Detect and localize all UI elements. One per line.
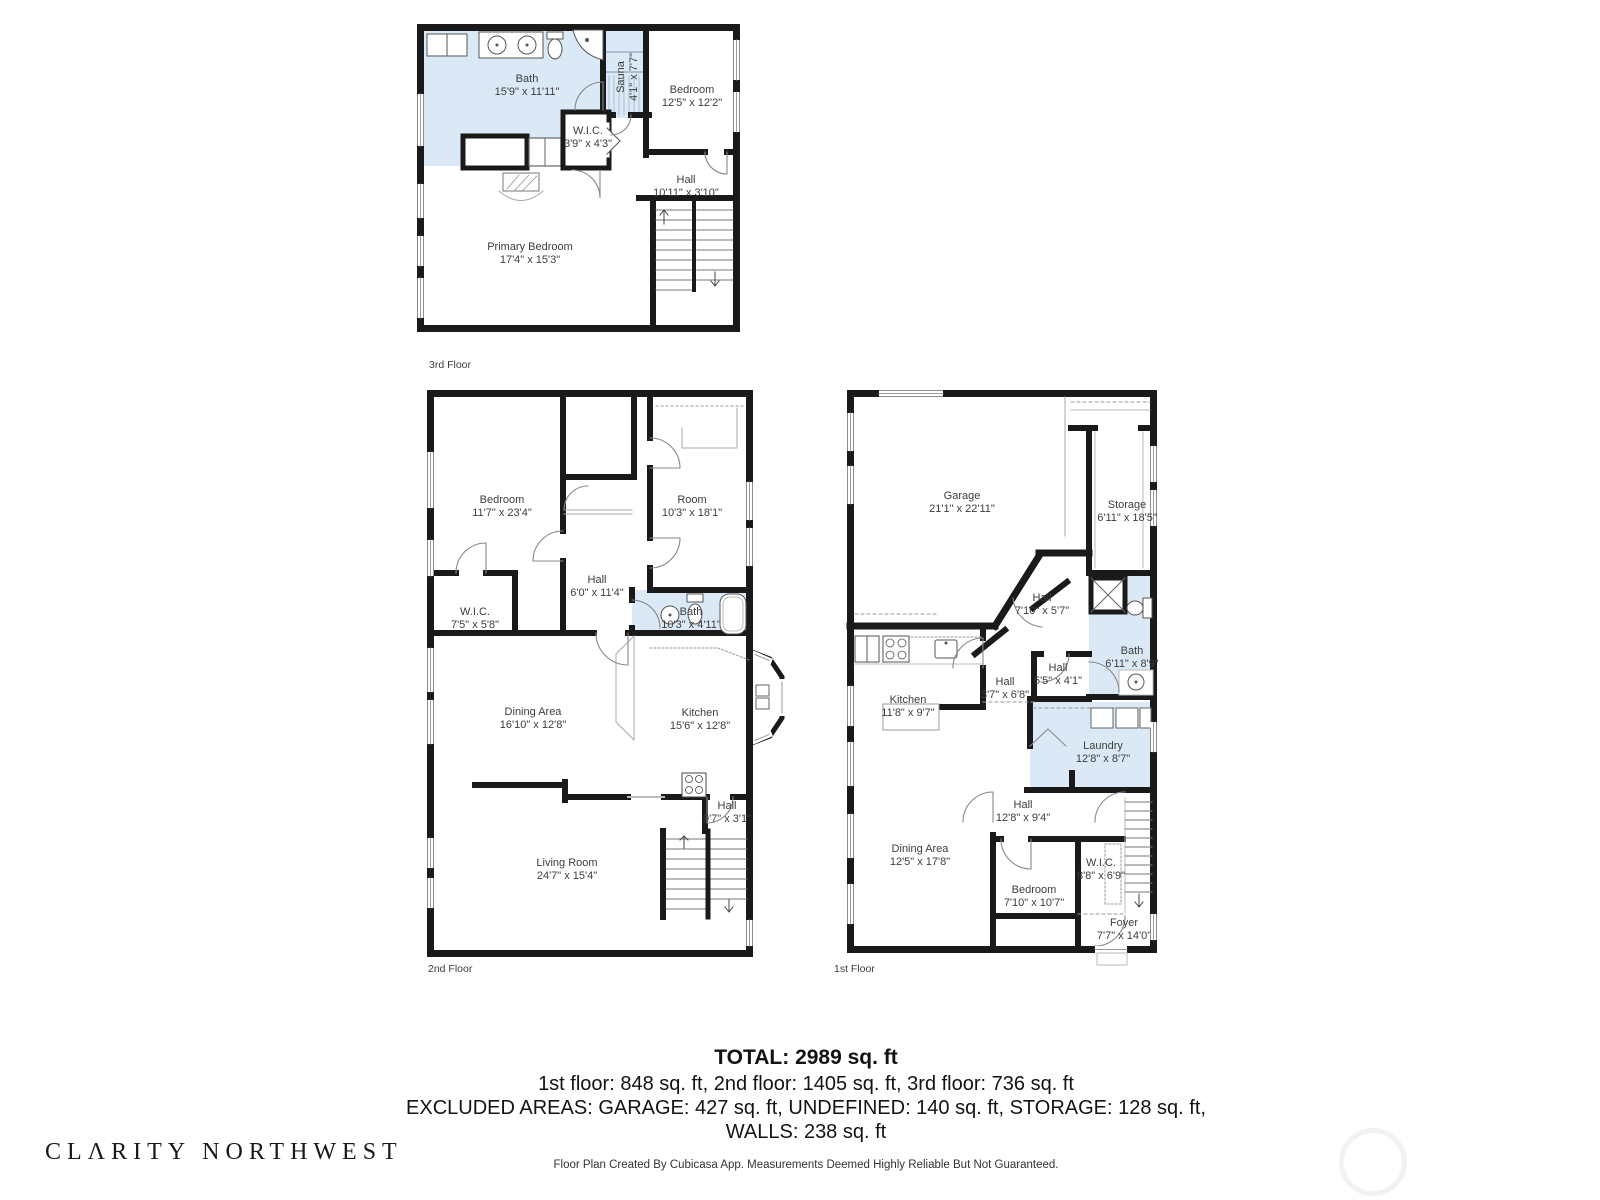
room-label-foyer-1f: Foyer 7'7" x 14'0" (1097, 917, 1151, 943)
room-label-bedroom-3f: Bedroom 12'5" x 12'2" (662, 84, 722, 110)
room-label-wic-2f: W.I.C. 7'5" x 5'8" (451, 606, 499, 632)
summary-walls: WALLS: 238 sq. ft (300, 1121, 1312, 1144)
room-label-primary-bedroom-3f: Primary Bedroom 17'4" x 15'3" (487, 241, 573, 267)
room-label-bath-1f: Bath 6'11" x 8'9" (1105, 645, 1158, 671)
floorplan-2nd-floor (418, 386, 796, 974)
room-label-living-room-2f: Living Room 24'7" x 15'4" (536, 857, 597, 883)
room-label-hall-small-2f: Hall 9'7" x 3'1" (703, 800, 751, 826)
clarity-northwest-logo: CLΛRITY NORTHWEST (45, 1139, 403, 1166)
floor-caption-3rd: 3rd Floor (429, 359, 471, 371)
room-label-hall-2f: Hall 6'0" x 11'4" (570, 574, 623, 600)
room-label-wic-1f: W.I.C. 8'8" x 6'9" (1077, 857, 1125, 883)
room-label-bath-3f: Bath 15'9" x 11'11" (495, 73, 560, 99)
room-label-laundry-1f: Laundry 12'8" x 8'7" (1076, 740, 1130, 766)
room-label-bath-2f: Bath 10'3" x 4'11" (661, 606, 721, 632)
room-label-hall-3f: Hall 10'11" x 3'10" (653, 174, 719, 200)
room-label-garage-1f: Garage 21'1" x 22'11" (929, 490, 995, 516)
watermark-circle (1339, 1128, 1407, 1196)
summary-floors: 1st floor: 848 sq. ft, 2nd floor: 1405 s… (300, 1073, 1312, 1096)
floor-caption-2nd: 2nd Floor (428, 963, 472, 975)
room-label-sauna-3f: Sauna 4'1" x 7'7" (615, 53, 641, 101)
room-label-hall-upper-1f: Hall 7'10" x 5'7" (1015, 592, 1069, 618)
room-label-hall-lower-1f: Hall 12'8" x 9'4" (996, 799, 1050, 825)
room-label-kitchen-2f: Kitchen 15'6" x 12'8" (670, 707, 730, 733)
disclaimer-text: Floor Plan Created By Cubicasa App. Meas… (300, 1159, 1312, 1171)
floorplan-page: Bath 15'9" x 11'11" Sauna 4'1" x 7'7" Be… (0, 0, 1600, 1200)
room-label-bedroom-1f: Bedroom 7'10" x 10'7" (1004, 884, 1064, 910)
room-label-dining-area-2f: Dining Area 16'10" x 12'8" (500, 706, 566, 732)
room-label-storage-1f: Storage 6'11" x 18'5" (1097, 499, 1157, 525)
summary-excluded: EXCLUDED AREAS: GARAGE: 427 sq. ft, UNDE… (300, 1097, 1312, 1120)
floor-caption-1st: 1st Floor (834, 963, 875, 975)
room-label-bedroom-2f: Bedroom 11'7" x 23'4" (472, 494, 532, 520)
summary-total: TOTAL: 2989 sq. ft (300, 1046, 1312, 1070)
room-label-dining-area-1f: Dining Area 12'5" x 17'8" (890, 843, 950, 869)
room-label-hall-mid-1f: Hall 5'5" x 4'1" (1034, 662, 1082, 688)
room-label-hall-narrow-1f: Hall 3'7" x 6'8" (981, 676, 1029, 702)
room-label-room-2f: Room 10'3" x 18'1" (662, 494, 722, 520)
room-label-wic-3f: W.I.C. 3'9" x 4'3" (564, 125, 612, 151)
room-label-kitchen-1f: Kitchen 11'8" x 9'7" (881, 694, 934, 720)
